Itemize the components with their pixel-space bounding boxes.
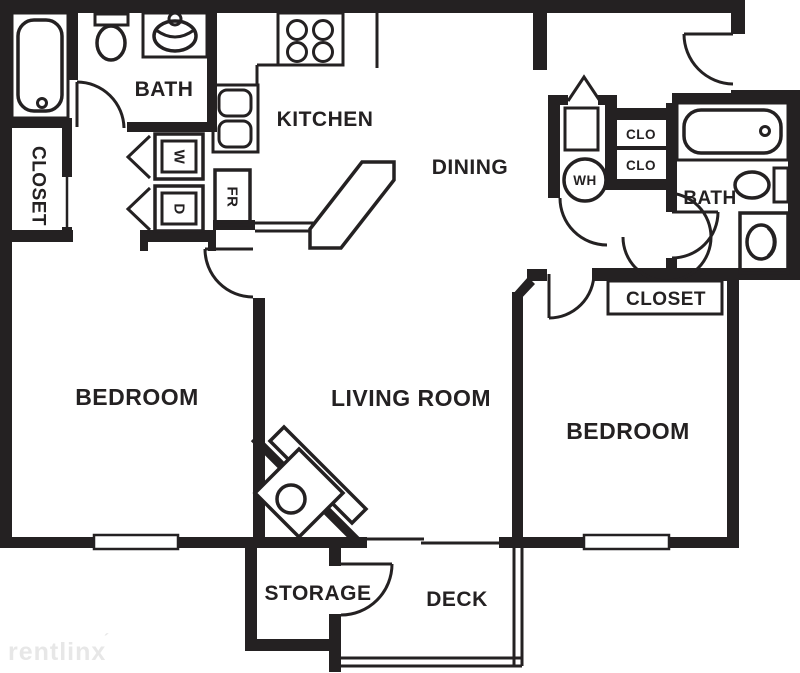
bathtub-left-icon <box>12 13 68 118</box>
watermark-mark: ´ <box>104 631 110 648</box>
washer-bifold-door <box>128 136 150 178</box>
washer-label: W <box>171 150 188 165</box>
left-bedroom-door <box>205 249 253 297</box>
utility-bifold-door <box>568 77 600 101</box>
stove-icon <box>257 13 377 85</box>
kitchen-sink-icon <box>213 85 258 152</box>
fireplace-icon <box>254 427 366 541</box>
floorplan-drawing: BATH KITCHEN DINING BATH BEDROOM LIVING … <box>0 0 800 673</box>
dryer-label: D <box>171 203 188 214</box>
toilet-right-icon <box>735 168 788 202</box>
refrigerator-label: FR <box>224 187 241 208</box>
watermark-text: rentlinx <box>8 638 106 666</box>
closet-label-clo-bottom: CLO <box>626 158 656 173</box>
room-label-living-room: LIVING ROOM <box>331 385 491 411</box>
toilet-left-icon <box>95 14 128 60</box>
kitchen-bar-counter <box>255 162 394 248</box>
watermark: rentlinx ´ <box>8 631 110 666</box>
bathtub-right-icon <box>677 103 788 160</box>
room-label-bedroom-right: BEDROOM <box>566 418 690 444</box>
walls <box>0 0 800 672</box>
water-heater-label: WH <box>573 173 597 188</box>
floorplan-page: BATH KITCHEN DINING BATH BEDROOM LIVING … <box>0 0 800 673</box>
left-bath-door <box>77 82 124 128</box>
room-label-storage: STORAGE <box>265 582 372 605</box>
closet-label-right: CLOSET <box>626 289 706 310</box>
entry-door <box>684 34 733 84</box>
room-label-kitchen: KITCHEN <box>277 108 374 131</box>
room-label-bath-left: BATH <box>135 78 194 101</box>
closet-label-clo-top: CLO <box>626 127 656 142</box>
window-right-bedroom <box>584 535 669 549</box>
right-bath-door <box>672 212 718 258</box>
room-label-dining: DINING <box>432 156 509 179</box>
utility-closet-door <box>560 198 607 245</box>
room-label-bedroom-left: BEDROOM <box>75 384 199 410</box>
vanity-sink-icon <box>740 213 788 273</box>
dryer-bifold-door <box>128 188 150 230</box>
room-label-deck: DECK <box>426 588 488 611</box>
window-left-bedroom <box>94 535 178 549</box>
labels: BATH KITCHEN DINING BATH BEDROOM LIVING … <box>28 78 737 611</box>
sink-left-icon <box>143 13 207 57</box>
right-bedroom-door <box>549 273 594 318</box>
room-label-bath-right: BATH <box>683 188 736 209</box>
closet-label-left: CLOSET <box>28 146 49 226</box>
doors <box>77 34 733 615</box>
